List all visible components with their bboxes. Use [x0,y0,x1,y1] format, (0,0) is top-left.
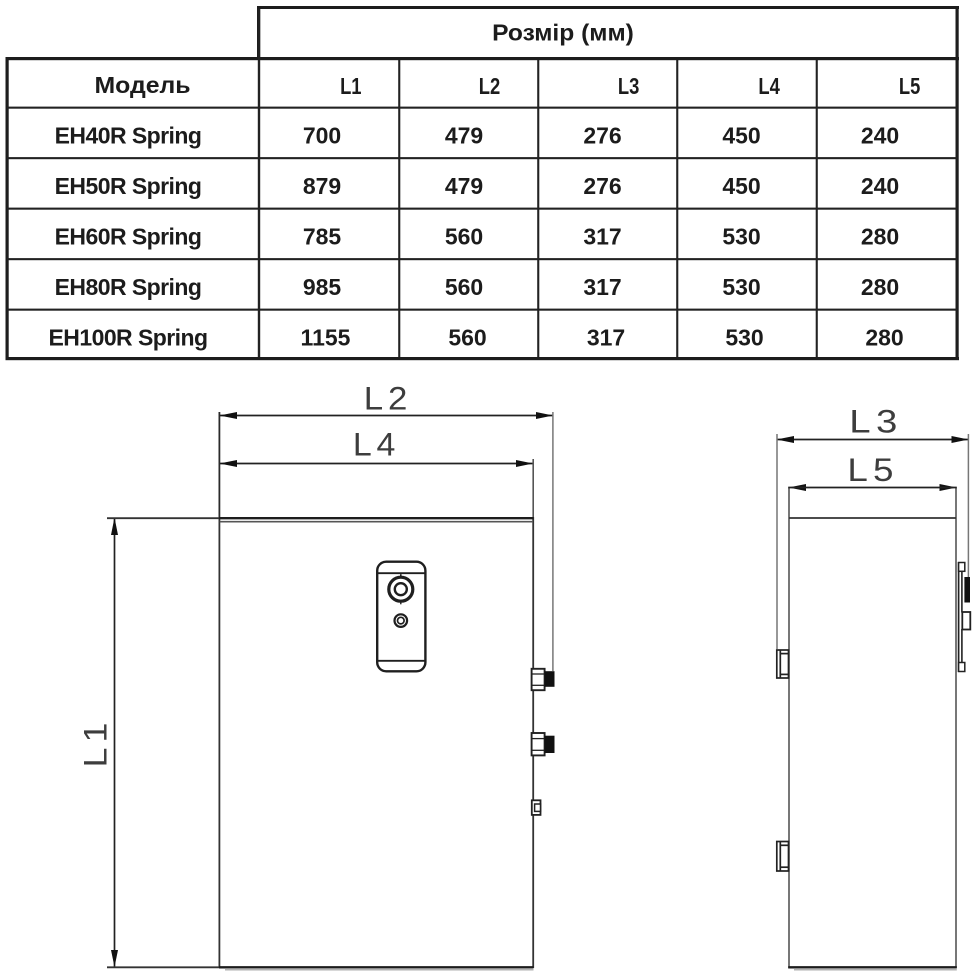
svg-text:L1: L1 [78,718,114,768]
svg-text:450: 450 [722,123,760,149]
svg-text:EH60R Spring: EH60R Spring [55,224,202,250]
svg-text:879: 879 [303,173,341,199]
svg-text:317: 317 [587,325,625,351]
svg-text:560: 560 [445,274,483,300]
svg-text:Модель: Модель [94,73,190,99]
svg-text:317: 317 [583,274,621,300]
svg-text:530: 530 [722,224,760,250]
svg-text:EH80R Spring: EH80R Spring [55,274,202,300]
svg-text:1155: 1155 [301,325,351,351]
svg-text:560: 560 [448,325,486,351]
svg-text:EH100R Spring: EH100R Spring [48,325,207,351]
svg-text:700: 700 [303,123,341,149]
svg-text:450: 450 [722,173,760,199]
svg-text:560: 560 [445,224,483,250]
svg-text:479: 479 [445,123,483,149]
svg-text:L5: L5 [847,453,898,488]
svg-text:785: 785 [303,224,342,250]
svg-text:L1: L1 [340,74,361,99]
svg-text:280: 280 [861,274,899,300]
svg-text:985: 985 [303,274,342,300]
svg-text:530: 530 [722,274,760,300]
svg-text:L4: L4 [353,426,400,462]
svg-text:317: 317 [583,224,621,250]
svg-text:479: 479 [445,173,483,199]
svg-text:280: 280 [861,224,899,250]
svg-text:240: 240 [861,123,899,149]
svg-text:280: 280 [865,325,903,351]
svg-text:L2: L2 [479,74,500,99]
svg-text:L4: L4 [758,74,780,99]
svg-text:530: 530 [725,325,763,351]
svg-text:L2: L2 [364,382,413,417]
svg-text:Розмір (мм): Розмір (мм) [492,20,634,46]
svg-text:L3: L3 [849,404,903,439]
svg-text:L5: L5 [899,74,920,99]
svg-text:276: 276 [583,123,621,149]
svg-text:L3: L3 [618,74,639,99]
svg-text:EH50R Spring: EH50R Spring [55,173,202,199]
svg-text:240: 240 [861,173,899,199]
svg-text:276: 276 [583,173,621,199]
svg-text:EH40R Spring: EH40R Spring [55,123,202,149]
